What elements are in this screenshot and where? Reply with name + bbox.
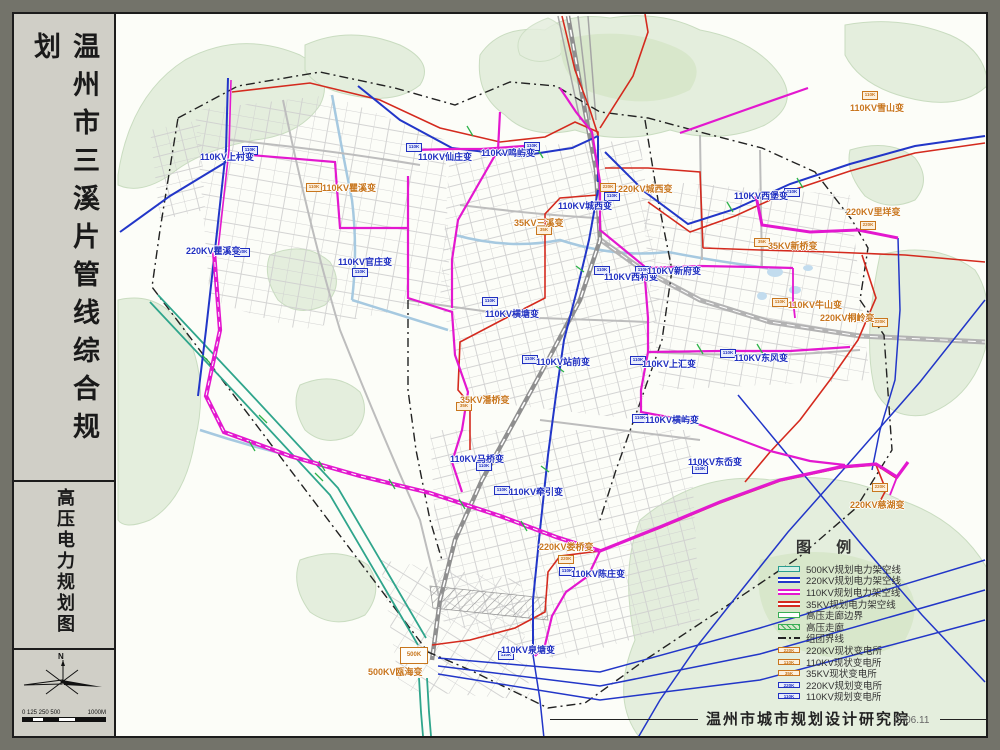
legend-swatch-hatch bbox=[778, 624, 800, 630]
substation-label: 35KV潘桥变 bbox=[460, 393, 510, 406]
substation-label: 110KV牛山变 bbox=[788, 298, 842, 311]
substation-box: 500K bbox=[400, 647, 428, 664]
substation-label: 110KV上村变 bbox=[200, 150, 254, 163]
substation-label: 220KV娄桥变 bbox=[539, 540, 594, 553]
substation-label: 110KV东风变 bbox=[734, 351, 788, 364]
substation-label: 110KV陈庄变 bbox=[571, 567, 625, 580]
substation-box: 220K bbox=[600, 183, 616, 192]
legend-items: 500KV规划电力架空线220KV规划电力架空线110KV规划电力架空线35KV… bbox=[778, 563, 988, 702]
substation-label: 110KV仙庄变 bbox=[418, 150, 472, 163]
substation-label: 110KV新府变 bbox=[647, 264, 701, 277]
substation-label: 110KV东岙变 bbox=[688, 455, 742, 468]
legend-swatch-bar-line bbox=[778, 577, 800, 583]
legend-swatch-bar-line bbox=[778, 589, 800, 595]
sidebar-sub-title-block: 高压电力规划图 bbox=[14, 482, 114, 650]
attribution: 温州市城市规划设计研究院 2006.11 bbox=[550, 708, 988, 734]
substation-box: 110K bbox=[494, 486, 510, 495]
substation-label: 220KV里垟变 bbox=[846, 205, 901, 218]
substation-box: 110K bbox=[862, 91, 878, 100]
scale-bar: 0 125 250 500 1000M bbox=[22, 710, 106, 722]
substation-label: 110KV横塘变 bbox=[485, 307, 539, 320]
sheet-main-title: 温州市三溪片管线综合规划 bbox=[25, 32, 103, 480]
legend-swatch-bar-fill bbox=[778, 566, 800, 572]
legend-swatch-station: 35K bbox=[778, 670, 800, 676]
sidebar: 温州市三溪片管线综合规划 高压电力规划图 N 0 125 250 500 bbox=[14, 14, 116, 736]
substation-label: 110KV站前变 bbox=[536, 355, 590, 368]
substation-label: 110KV牵引变 bbox=[509, 485, 563, 498]
legend-item-label: 110KV规划变电所 bbox=[806, 689, 881, 703]
legend-title: 图 例 bbox=[796, 536, 988, 557]
substation-label: 110KV城西变 bbox=[558, 199, 612, 212]
substation-label: 110KV雪山变 bbox=[850, 101, 904, 114]
substation-label: 110KV瞿溪变 bbox=[322, 181, 376, 194]
substation-label: 110KV西堡变 bbox=[734, 189, 788, 202]
planning-map-sheet: 110K110KV上村变110K110KV瞿溪变220K220KV瞿溪变110K… bbox=[0, 0, 1000, 750]
substation-label: 110KV官庄变 bbox=[338, 255, 392, 268]
legend-swatch-bar-fill bbox=[778, 612, 800, 618]
substation-label: 110KV马桥变 bbox=[450, 452, 504, 465]
legend-panel: 图 例 500KV规划电力架空线220KV规划电力架空线110KV规划电力架空线… bbox=[778, 536, 988, 702]
substation-label: 220KV瞿溪变 bbox=[186, 244, 241, 257]
legend-swatch-station: 220K bbox=[778, 682, 800, 688]
attribution-date: 2006.11 bbox=[894, 715, 929, 726]
sidebar-main-title-block: 温州市三溪片管线综合规划 bbox=[14, 14, 114, 482]
legend-swatch-station: 220K bbox=[778, 647, 800, 653]
compass-icon bbox=[16, 658, 112, 708]
substation-label: 110KV泉塘变 bbox=[501, 643, 555, 656]
substation-label: 220KV城西变 bbox=[618, 182, 673, 195]
legend-item: 110K110KV规划变电所 bbox=[778, 691, 988, 703]
legend-swatch-station: 110K bbox=[778, 693, 800, 699]
substation-label: 220KV慈湖变 bbox=[850, 498, 905, 511]
attribution-rule-right bbox=[940, 719, 988, 720]
sidebar-compass-block: N 0 125 250 500 1000M bbox=[14, 650, 114, 736]
substation-label: 110KV鸣屿变 bbox=[481, 146, 535, 159]
substation-label: 500KV瓯海变 bbox=[368, 665, 423, 678]
legend-swatch-bar-line bbox=[778, 601, 800, 607]
substation-box: 220K bbox=[872, 483, 888, 492]
legend-swatch-station: 110K bbox=[778, 659, 800, 665]
map-canvas-layer: 110K110KV上村变110K110KV瞿溪变220K220KV瞿溪变110K… bbox=[12, 12, 988, 738]
scale-labels: 0 125 250 500 1000M bbox=[22, 710, 106, 716]
scale-strip bbox=[22, 717, 106, 722]
substation-box: 220K bbox=[860, 221, 876, 230]
substation-box: 220K bbox=[558, 555, 574, 564]
legend-swatch-dashdot bbox=[778, 637, 800, 639]
substation-label: 110KV上汇变 bbox=[642, 357, 696, 370]
substation-box: 110K bbox=[306, 183, 322, 192]
attribution-rule-left bbox=[550, 719, 698, 720]
substation-label: 35KV三溪变 bbox=[514, 216, 564, 229]
sheet-sub-title: 高压电力规划图 bbox=[51, 488, 77, 648]
attribution-org: 温州市城市规划设计研究院 bbox=[706, 708, 910, 729]
substation-box: 110K bbox=[772, 298, 788, 307]
substation-label: 220KV桐岭变 bbox=[820, 311, 875, 324]
map-sheet-inner: 110K110KV上村变110K110KV瞿溪变220K220KV瞿溪变110K… bbox=[12, 12, 988, 738]
substation-box: 110K bbox=[482, 297, 498, 306]
substation-label: 35KV新桥变 bbox=[768, 239, 818, 252]
substation-box: 110K bbox=[352, 268, 368, 277]
substation-label: 110KV横屿变 bbox=[645, 413, 699, 426]
